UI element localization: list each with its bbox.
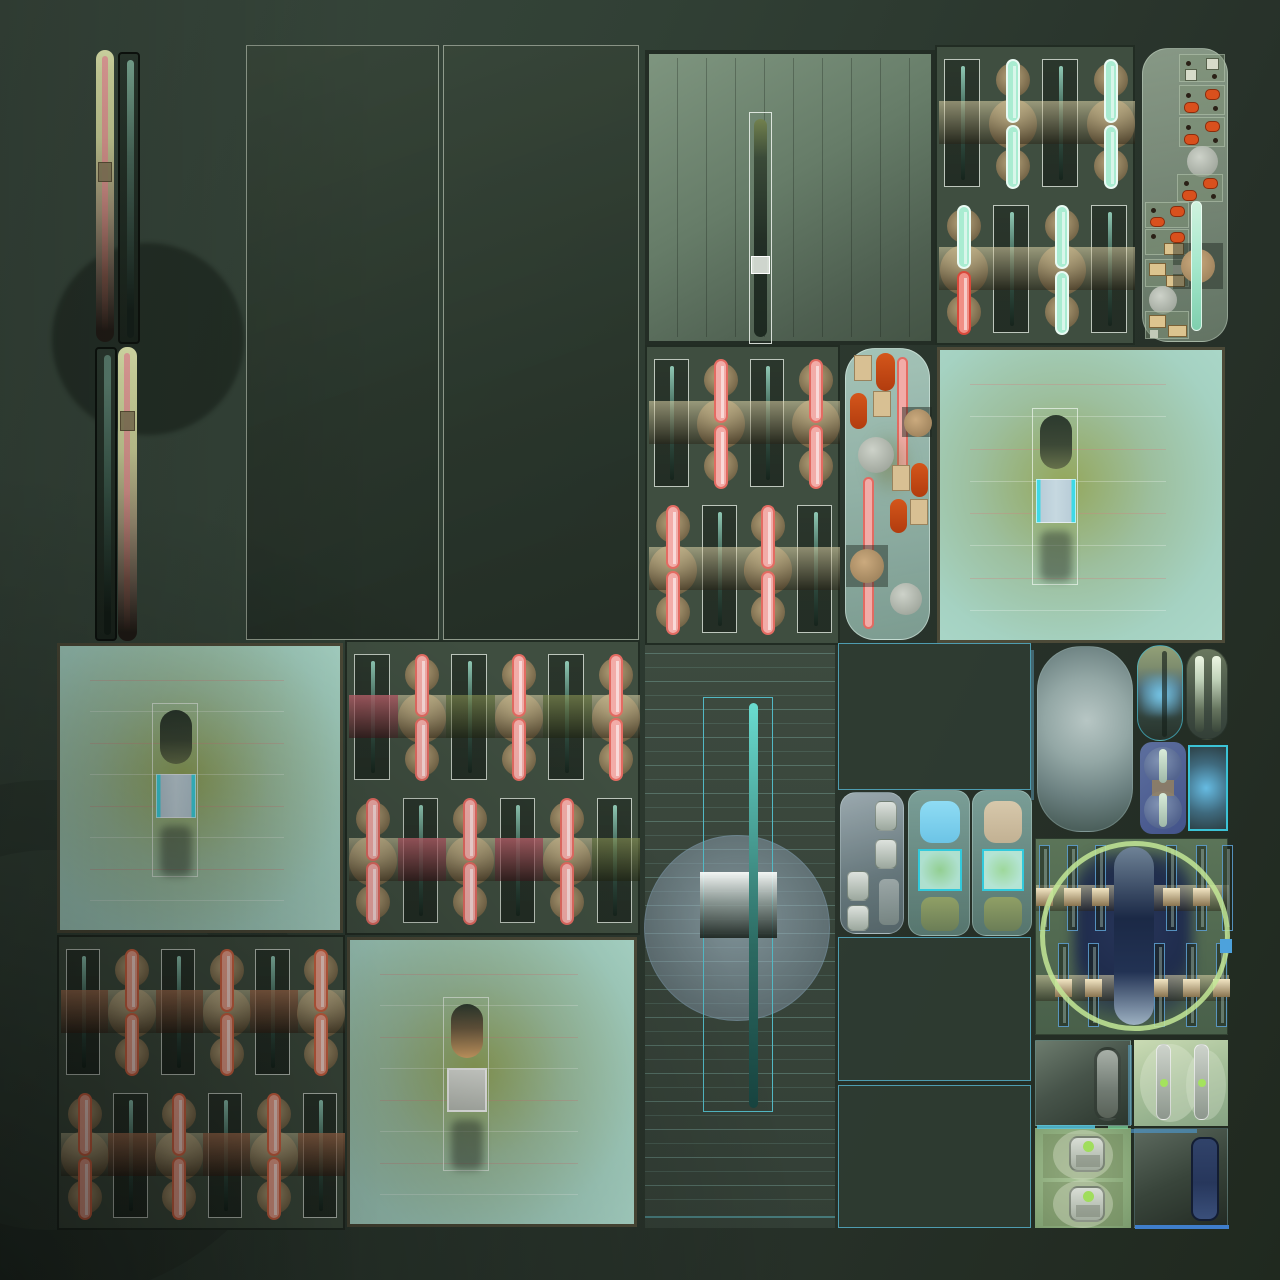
vignette-left-edge [0, 0, 1280, 1280]
generative-synth-art-canvas [0, 0, 1280, 1280]
